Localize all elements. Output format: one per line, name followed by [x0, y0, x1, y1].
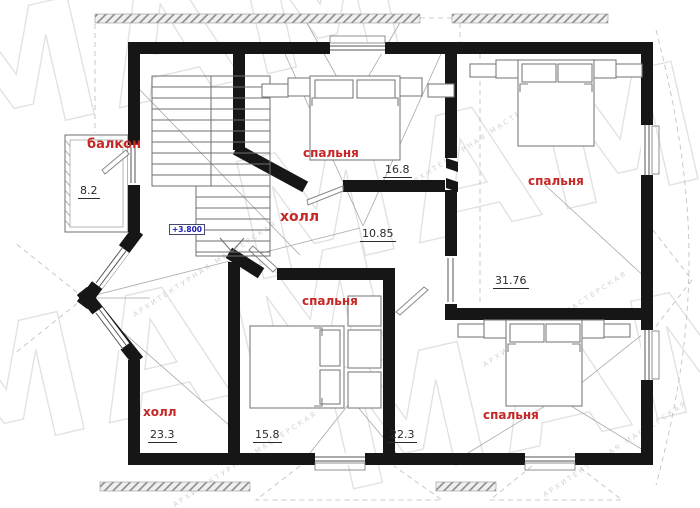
elevation-mark: +3.800 [169, 224, 205, 235]
area-balcony: 8.2 [78, 184, 100, 199]
area-bedroom-top: 16.8 [383, 163, 412, 178]
bed-bottom-right [458, 320, 630, 406]
bed-bottom-middle [250, 296, 381, 408]
area-hall-lower: 23.3 [148, 428, 177, 443]
room-label-balcony: балкон [87, 137, 141, 152]
area-bedroom-mid: 15.8 [253, 428, 282, 443]
room-label-bedroom-bottom-right: спальня [483, 408, 539, 422]
room-label-bedroom-mid: спальня [302, 294, 358, 308]
room-label-hall-lower: холл [143, 405, 177, 419]
area-hall-upper: 10.85 [360, 227, 396, 242]
bed-top-right [470, 60, 642, 146]
room-label-bedroom-top: спальня [303, 146, 359, 160]
room-label-bedroom-right: спальня [528, 174, 584, 188]
plan-drawing [0, 0, 700, 508]
room-label-hall-upper: холл [280, 209, 319, 225]
area-bedroom-bottom-right: 22.3 [388, 428, 417, 443]
area-bedroom-right: 31.76 [493, 274, 529, 289]
floor-plan-canvas: МАМ МАМ МАМ МАМ АРХИТЕКТУРНАЯ МАСТЕРСКАЯ… [0, 0, 700, 508]
